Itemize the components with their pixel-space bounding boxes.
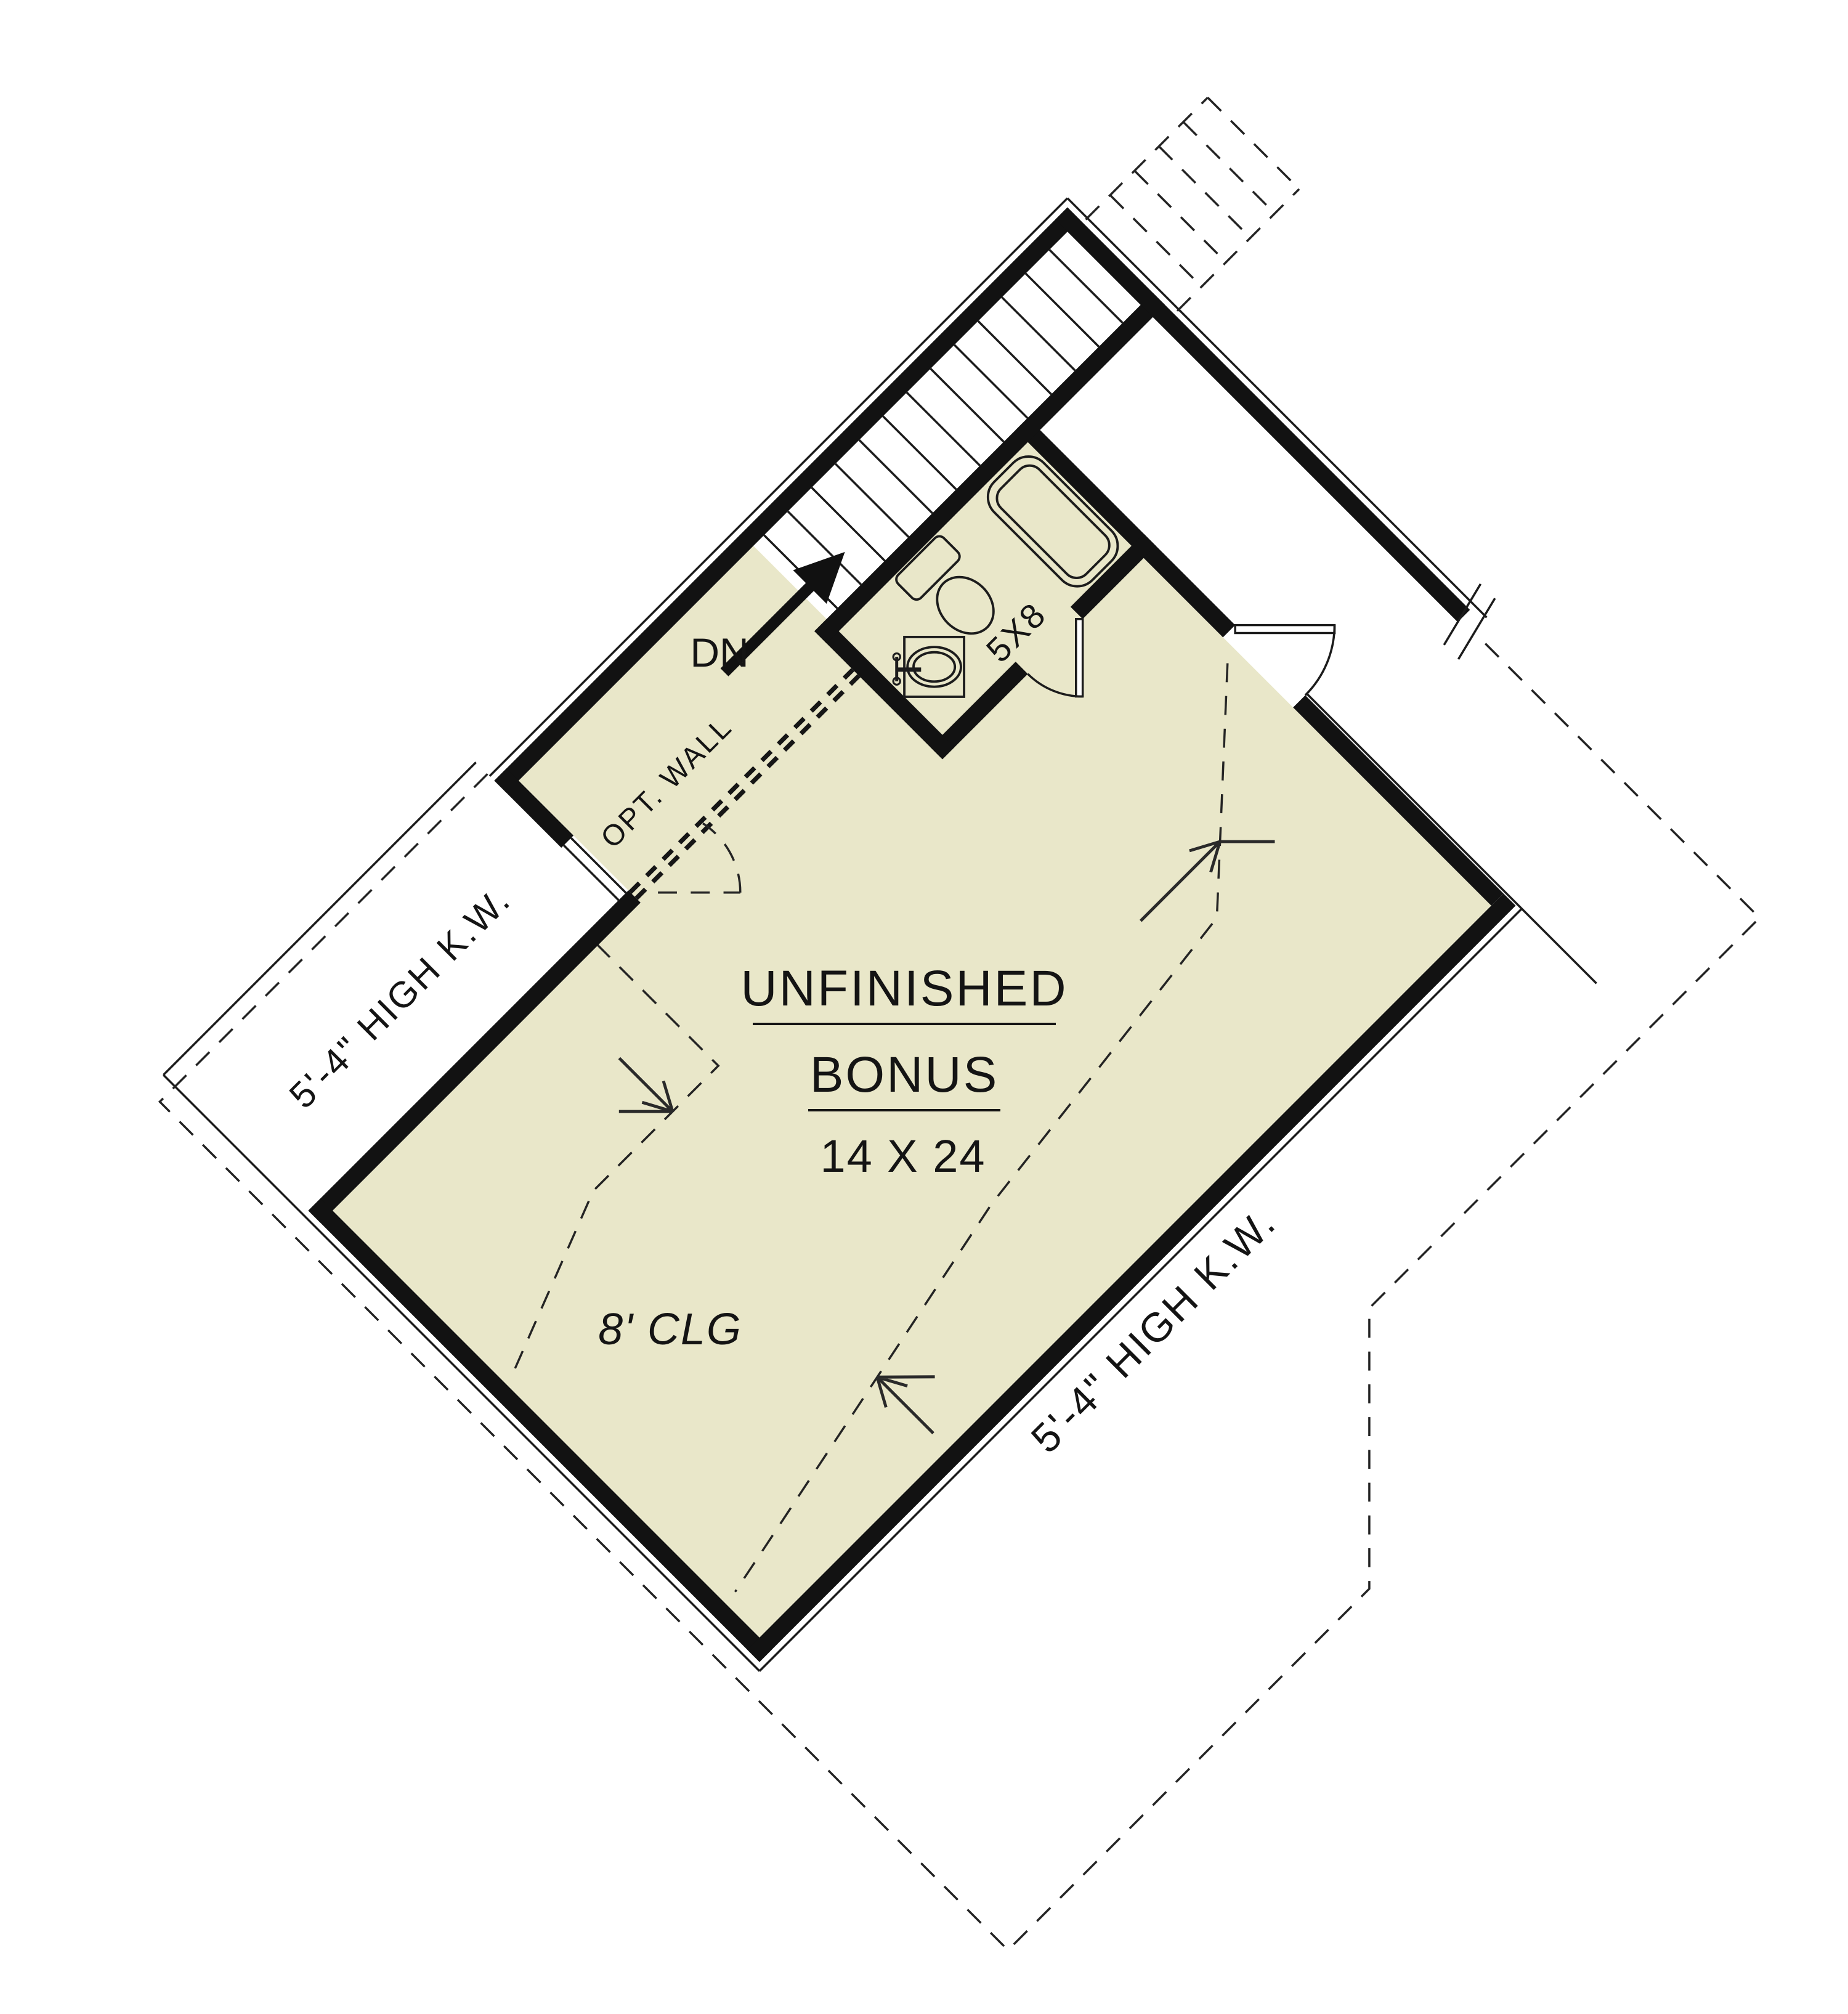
room-dimensions-label: 14 X 24 bbox=[820, 1131, 986, 1182]
room-name-line1: UNFINISHED bbox=[740, 960, 1068, 1017]
stair-direction-label: DN bbox=[690, 630, 748, 675]
floor-plan-canvas: OPT. WALL 5X8 5'-4" HIGH K.W. 5'-4" HIGH… bbox=[0, 0, 1848, 2014]
ceiling-height-label: 8' CLG bbox=[598, 1305, 742, 1354]
door-swing-arc bbox=[1285, 625, 1355, 696]
room-name-line2: BONUS bbox=[810, 1047, 999, 1103]
floor-plan-page: { "drawing_type": "second-floor bonus ro… bbox=[0, 0, 1848, 2014]
